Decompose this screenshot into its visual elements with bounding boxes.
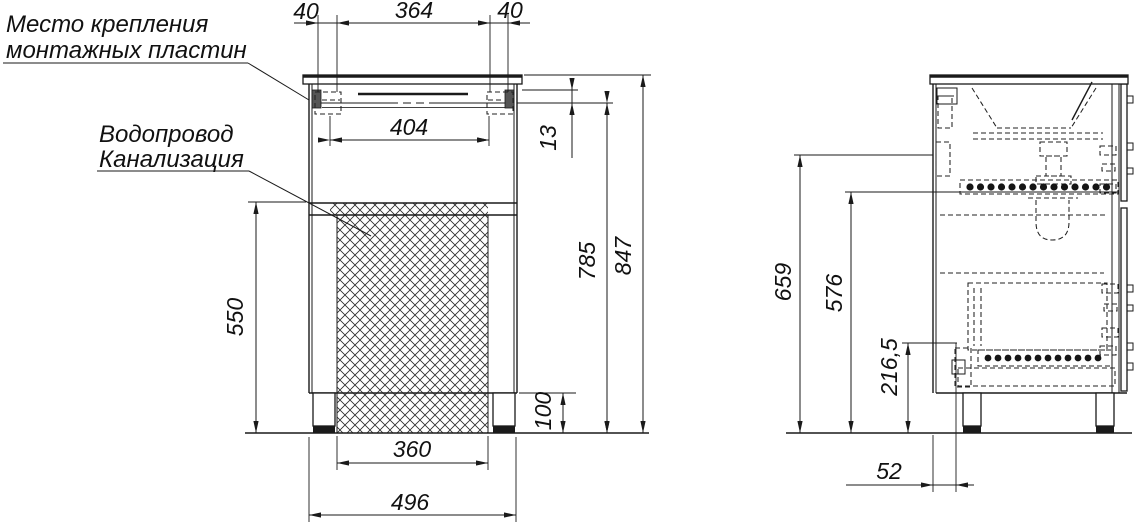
mounting-plate-left: [312, 90, 341, 114]
side-leg-back: [1096, 393, 1114, 426]
vanity-cabinet-drawing: 40 364 40 404 13: [0, 0, 1136, 529]
dim-plate-drop-text: 13: [535, 125, 561, 151]
back-fitting-upper: [938, 96, 952, 128]
dim-plate-centers: 404: [330, 114, 489, 146]
annotation-mounting-plates: Место крепления монтажных пластин: [3, 11, 309, 100]
dim-leg-height: 100: [519, 392, 576, 433]
mounting-bracket-left: [312, 90, 321, 108]
dim-slide-height: 576: [821, 192, 933, 433]
dim-supply-height-text: 659: [770, 263, 796, 302]
front-leg-left: [313, 393, 335, 426]
dim-leg-height-text: 100: [530, 392, 556, 431]
front-fittings: [1100, 96, 1133, 370]
drain-assembly: [1036, 142, 1071, 184]
mounting-plate-right: [487, 90, 514, 114]
dim-top-left-offset: 40: [293, 0, 319, 24]
dim-opening-width-text: 360: [393, 436, 432, 462]
side-leg-front: [963, 393, 981, 426]
lower-drawer: [968, 283, 1107, 350]
label-mounting-line1: Место крепления: [6, 11, 208, 38]
dim-clearance-height: 550: [222, 202, 306, 433]
leader-mounting: [248, 63, 309, 100]
side-dimensions: 659 576 216,5 52: [770, 155, 974, 492]
sink-basin: [972, 82, 1103, 139]
side-cabinet-body: [933, 84, 1127, 393]
drawer-slide-row-lower: [952, 348, 1115, 387]
drawer-front-upper: [1121, 84, 1127, 201]
plumbing-hatch-zone: [330, 203, 488, 433]
dim-top-right-offset: 40: [497, 0, 523, 23]
dim-drain-height: 216,5: [876, 338, 957, 433]
technical-drawing-canvas: 40 364 40 404 13: [0, 0, 1136, 529]
label-plumbing-line1: Водопровод: [99, 121, 233, 148]
side-view: [786, 75, 1133, 433]
dim-mount-height-text: 785: [574, 242, 600, 281]
dim-plate-centers-text: 404: [390, 114, 428, 140]
hatch-band: [330, 203, 488, 215]
dim-drain-height-text: 216,5: [876, 338, 902, 397]
dim-total-height-text: 847: [610, 236, 636, 276]
side-internals: [933, 82, 1133, 387]
dim-clearance-height-text: 550: [222, 298, 248, 337]
drawer-slide-row-upper: [933, 180, 1118, 194]
dim-opening-width: 360: [337, 436, 488, 470]
side-countertop: [930, 75, 1128, 84]
front-leg-right: [493, 393, 515, 426]
label-mounting-line2: монтажных пластин: [6, 37, 247, 64]
side-legs: [963, 393, 1114, 433]
label-plumbing-line2: Канализация: [99, 146, 244, 173]
dim-plate-drop: 13: [517, 78, 613, 158]
dim-cabinet-width-text: 496: [391, 489, 430, 515]
hatch-main: [337, 215, 488, 433]
front-countertop: [303, 75, 522, 84]
dim-slide-height-text: 576: [821, 274, 847, 313]
dim-back-offset-text: 52: [876, 458, 902, 484]
drawer-front-lower: [1121, 208, 1127, 391]
back-fitting-lower: [936, 142, 950, 176]
dim-mounting-span: 364: [395, 0, 433, 23]
siphon: [1028, 198, 1078, 240]
